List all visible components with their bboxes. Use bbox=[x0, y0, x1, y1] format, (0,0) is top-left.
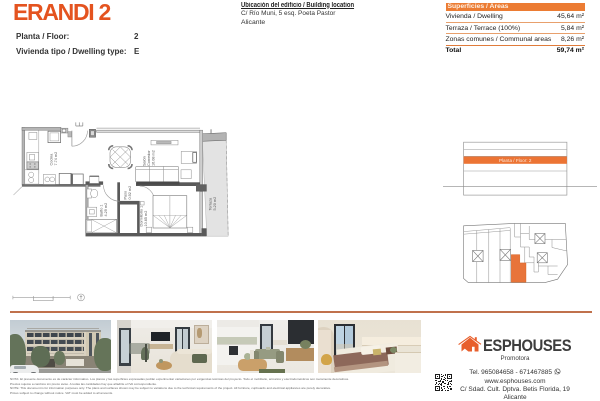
svg-text:Planta / Floor: 2: Planta / Floor: 2 bbox=[499, 158, 532, 163]
svg-text:16.08 m2: 16.08 m2 bbox=[151, 150, 155, 166]
svg-text:4.29 m2: 4.29 m2 bbox=[104, 203, 108, 217]
svg-text:0.92 m2: 0.92 m2 bbox=[128, 186, 132, 200]
svg-text:7.74 m2: 7.74 m2 bbox=[54, 152, 58, 166]
svg-text:5.20 m2: 5.20 m2 bbox=[213, 197, 217, 211]
svg-text:Salón: Salón bbox=[143, 156, 147, 166]
svg-text:10.65 m2: 10.65 m2 bbox=[144, 211, 148, 227]
